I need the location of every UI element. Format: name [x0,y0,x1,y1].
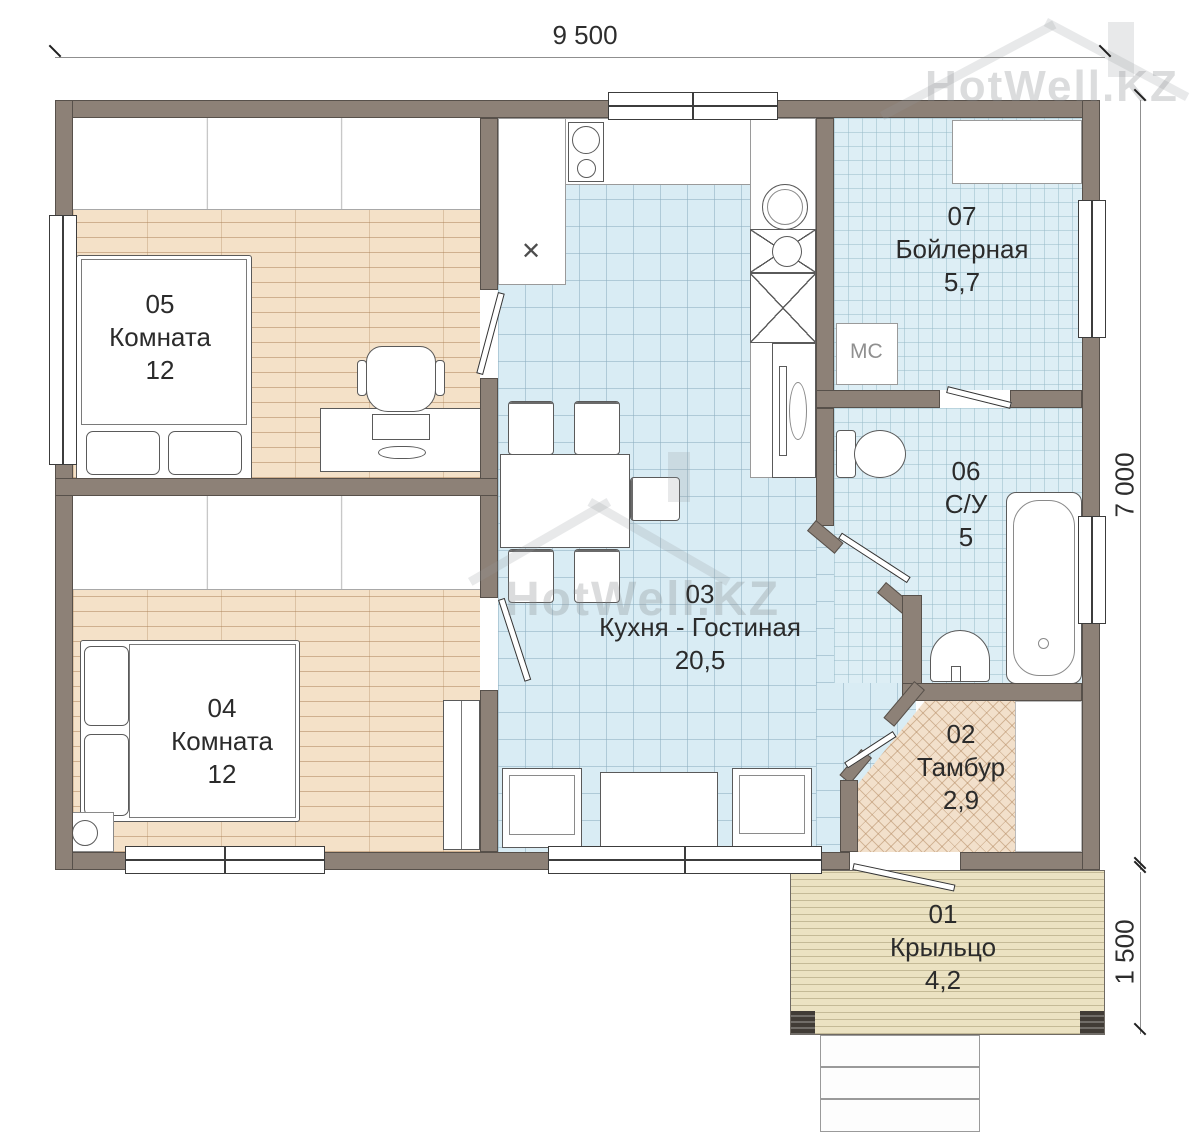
desk-tray [378,446,426,459]
room-name: Кухня - Гостиная [599,611,801,644]
wall-bedroom-divider [55,478,498,496]
room-area: 5,7 [895,266,1028,299]
room-label-04: 04 Комната 12 [171,692,273,791]
porch-step [820,1035,980,1067]
room-label-07: 07 Бойлерная 5,7 [895,200,1028,299]
room-area: 12 [109,354,211,387]
round-sink-inner [767,189,803,225]
keyboard [372,414,430,440]
wall-boiler-bath [1010,390,1082,408]
dimension-height-value: 7 000 [1110,452,1141,517]
pillow [84,646,129,726]
wall-bath-corner [902,595,922,695]
room-name: Крыльцо [890,931,996,964]
room-number: 06 [945,455,988,488]
dimension-line [55,57,1105,58]
room-name: Комната [171,725,273,758]
tv-screen [779,366,787,456]
room-area: 12 [171,758,273,791]
window-room-05 [49,215,77,465]
washing-machine-label: МС [850,340,883,364]
room-label-06: 06 С/У 5 [945,455,988,554]
wall-bath-bottom [902,683,1082,701]
room-area: 2,9 [917,784,1005,817]
room-number: 01 [890,898,996,931]
watermark-chimney-icon [668,452,690,502]
dining-table [500,454,630,548]
window-bathroom [1078,516,1106,624]
bathroom-sink-tap [951,666,961,682]
wardrobe [443,700,480,850]
coffee-table [600,772,718,848]
wall-center-vertical [480,690,498,852]
window-living [548,846,822,874]
porch-step [820,1099,980,1132]
wall-center-vertical [480,118,498,290]
room-label-03: 03 Кухня - Гостиная 20,5 [599,578,801,677]
pillow [86,431,160,475]
kitchen-sink-cross-icon: ✕ [521,237,541,266]
dining-chair [508,401,554,455]
burner [572,126,600,154]
room-label-05: 05 Комната 12 [109,288,211,387]
wall-tambour-left [840,780,858,852]
porch-post [791,1011,815,1035]
floor-plan-canvas: ✕ МС [0,0,1200,1143]
porch-step [820,1067,980,1099]
room-label-02: 02 Тамбур 2,9 [917,718,1005,817]
room-area: 20,5 [599,644,801,677]
lamp [72,820,98,846]
boiler-counter [952,120,1082,184]
room-number: 02 [917,718,1005,751]
room-name: С/У [945,488,988,521]
window-boiler [1078,200,1106,338]
room-name: Бойлерная [895,233,1028,266]
porch-post [1080,1011,1104,1035]
room-number: 03 [599,578,801,611]
room-number: 07 [895,200,1028,233]
dining-chair [574,401,620,455]
sink-cabinet-bowl [772,236,802,267]
burner [577,159,596,178]
wardrobe-band-room-04 [73,496,480,590]
room-area: 5 [945,521,988,554]
tambour-closet [1015,701,1082,852]
office-chair [366,346,436,412]
wall-bath-left [816,408,834,526]
room-area: 4,2 [890,964,996,997]
office-chair-arm [357,360,367,396]
dimension-tick [49,45,62,58]
room-name: Тамбур [917,751,1005,784]
office-chair-arm [435,360,445,396]
pillow [168,431,242,475]
dimension-porch-value: 1 500 [1110,919,1141,984]
window-kitchen-top [608,92,778,120]
bathtub-inner [1013,500,1075,676]
toilet-tank [836,430,856,478]
pillow [84,734,129,816]
sofa-seat [732,768,812,847]
wall-exterior-bottom [960,852,1100,870]
toilet-bowl [854,430,906,478]
tv-speaker [789,382,807,440]
wall-boiler-bath [816,390,940,408]
room-number: 04 [171,692,273,725]
dimension-width-value: 9 500 [552,20,617,51]
room-number: 05 [109,288,211,321]
room-name: Комната [109,321,211,354]
sofa-seat [502,768,582,848]
bathtub-drain [1038,638,1049,649]
wall-kitchen-boiler [816,118,834,408]
fridge [750,273,816,343]
room-label-01: 01 Крыльцо 4,2 [890,898,996,997]
wardrobe-band-room-05 [73,118,480,210]
window-room-04 [125,846,325,874]
